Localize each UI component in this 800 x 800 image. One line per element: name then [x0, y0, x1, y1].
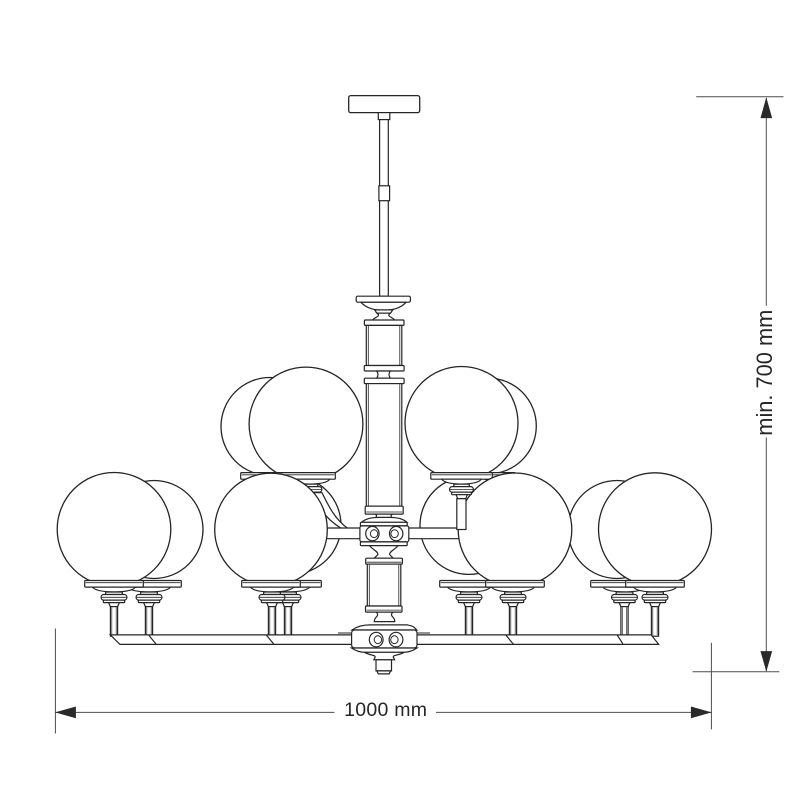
svg-text:1000 mm: 1000 mm — [344, 699, 427, 721]
svg-text:min. 700 mm: min. 700 mm — [752, 310, 777, 436]
